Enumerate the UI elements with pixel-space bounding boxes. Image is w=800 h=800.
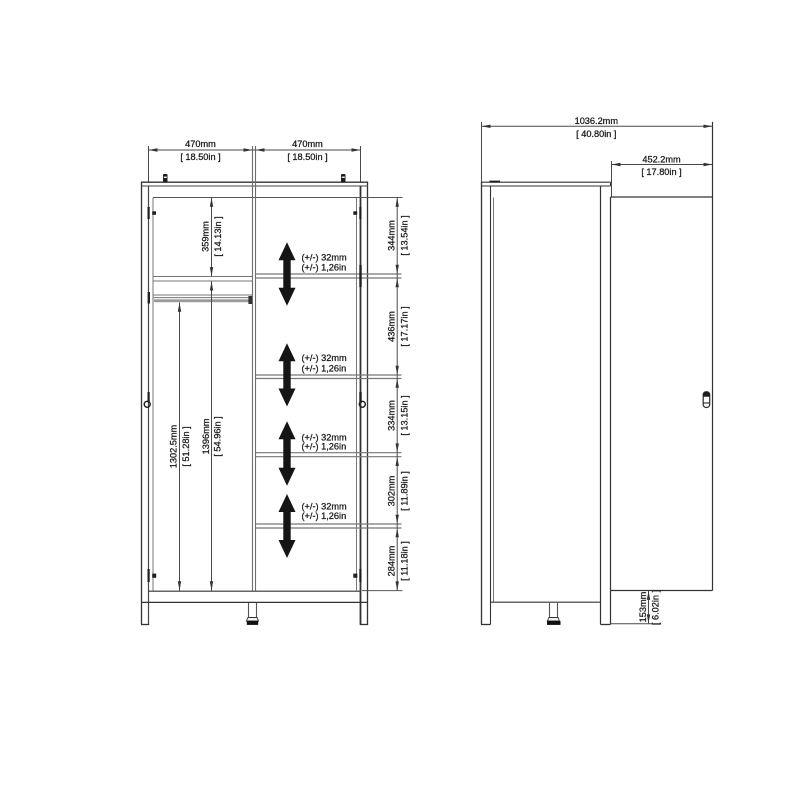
- svg-text:452.2mm: 452.2mm: [642, 154, 681, 164]
- svg-text:(+/-) 32mm: (+/-) 32mm: [302, 252, 348, 262]
- svg-text:[ 13.54in ]: [ 13.54in ]: [400, 215, 410, 255]
- svg-text:[ 13.15in ]: [ 13.15in ]: [400, 395, 410, 435]
- svg-text:[ 17.80in ]: [ 17.80in ]: [641, 167, 681, 177]
- svg-text:[ 18.50in ]: [ 18.50in ]: [287, 152, 327, 162]
- svg-text:1036.2mm: 1036.2mm: [575, 116, 619, 126]
- svg-text:153mm: 153mm: [638, 591, 648, 622]
- svg-text:[ 11.89in ]: [ 11.89in ]: [400, 471, 410, 511]
- svg-text:470mm: 470mm: [185, 139, 216, 149]
- svg-text:(+/-) 1,26in: (+/-) 1,26in: [302, 363, 347, 373]
- svg-text:334mm: 334mm: [387, 400, 397, 431]
- svg-text:359mm: 359mm: [200, 221, 210, 252]
- svg-text:1302.5mm: 1302.5mm: [169, 424, 179, 468]
- svg-text:(+/-) 1,26in: (+/-) 1,26in: [302, 262, 347, 272]
- svg-text:[ 11.18in ]: [ 11.18in ]: [400, 541, 410, 581]
- svg-text:(+/-) 1,26in: (+/-) 1,26in: [302, 442, 347, 452]
- svg-text:(+/-) 1,26in: (+/-) 1,26in: [302, 511, 347, 521]
- svg-text:[ 51.28in ]: [ 51.28in ]: [181, 426, 191, 466]
- svg-text:[ 54.96in ]: [ 54.96in ]: [212, 416, 222, 456]
- svg-text:(+/-) 32mm: (+/-) 32mm: [302, 353, 348, 363]
- svg-text:284mm: 284mm: [387, 545, 397, 576]
- svg-text:[ 17.17in ]: [ 17.17in ]: [400, 306, 410, 346]
- svg-text:(+/-) 32mm: (+/-) 32mm: [302, 502, 348, 512]
- svg-text:470mm: 470mm: [292, 139, 323, 149]
- svg-text:[ 40.80in ]: [ 40.80in ]: [576, 129, 616, 139]
- svg-text:[ 18.50in ]: [ 18.50in ]: [180, 152, 220, 162]
- svg-text:[ 6.02in ]: [ 6.02in ]: [651, 590, 661, 625]
- svg-text:344mm: 344mm: [387, 220, 397, 251]
- svg-text:302mm: 302mm: [387, 475, 397, 506]
- svg-text:[ 14.13in ]: [ 14.13in ]: [213, 216, 223, 256]
- svg-text:436mm: 436mm: [387, 311, 397, 342]
- svg-text:1396mm: 1396mm: [201, 418, 211, 454]
